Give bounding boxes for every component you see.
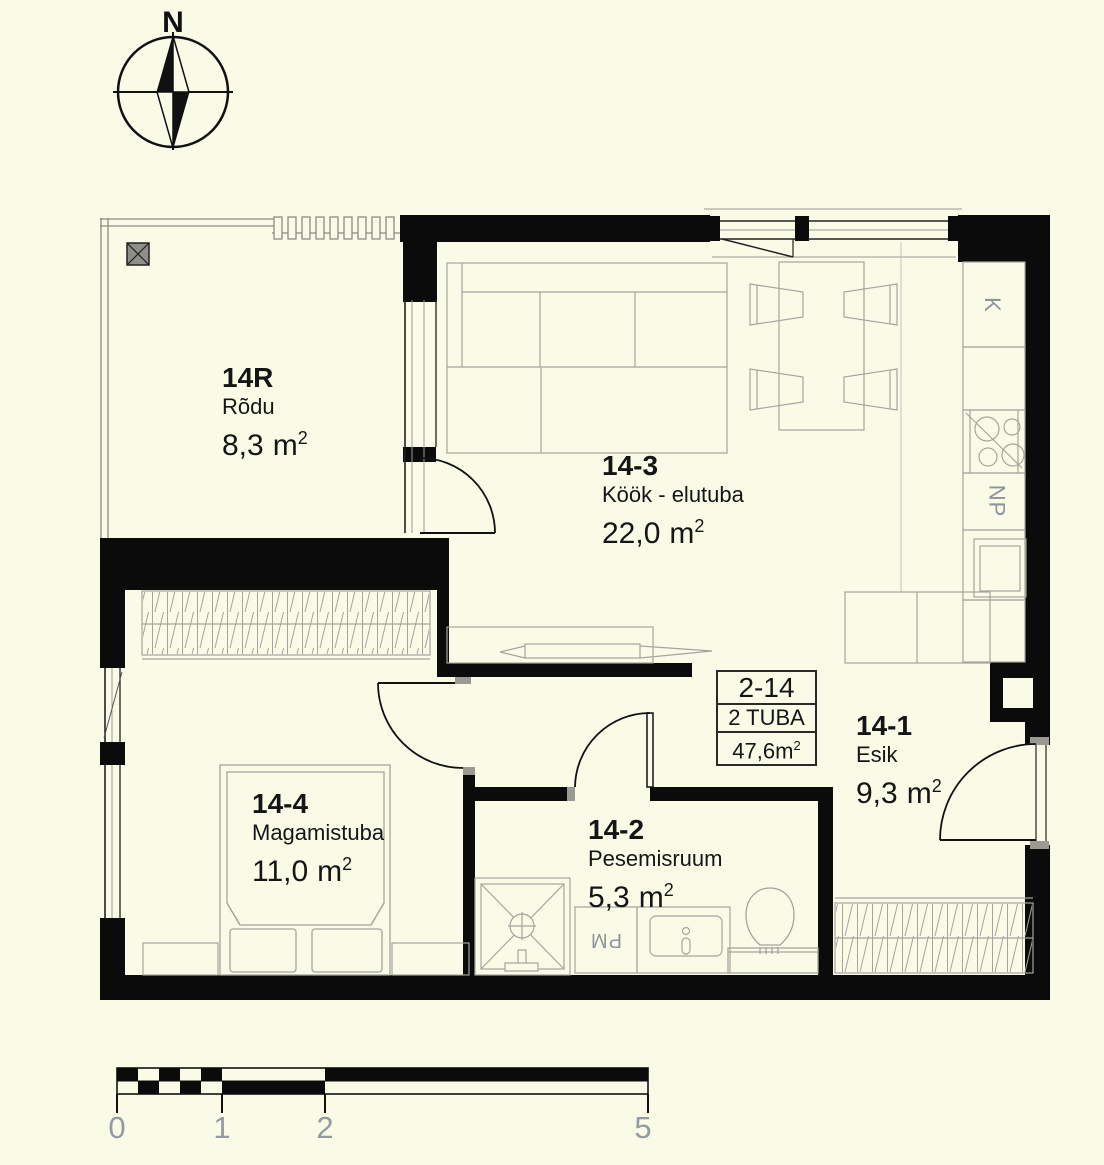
room-code: 14-1 — [856, 710, 942, 741]
hall-wardrobe — [835, 898, 1033, 973]
chair — [750, 284, 803, 325]
dining-table — [779, 262, 864, 430]
entrance-door — [940, 737, 1049, 849]
scale-label-2: 2 — [307, 1110, 343, 1146]
compass-icon — [113, 32, 233, 150]
corner-sofa — [447, 263, 727, 453]
tv-icon — [500, 644, 712, 658]
apartment-total-area: 47,6m2 — [718, 733, 815, 764]
bedroom-door — [378, 677, 475, 775]
kitchen-island-counter — [845, 592, 990, 663]
room-area: 5,3m2 — [588, 872, 722, 916]
room-code: 14-3 — [602, 450, 744, 481]
window-casement-line — [104, 672, 122, 738]
room-name: Köök - elutuba — [602, 481, 744, 508]
scale-label-5: 5 — [625, 1110, 661, 1146]
stove — [963, 410, 1025, 473]
window-left-small — [104, 668, 122, 742]
scale-label-1: 1 — [204, 1110, 240, 1146]
window-top — [704, 209, 962, 257]
scale-label-0: 0 — [99, 1110, 135, 1146]
apartment-number: 2-14 — [718, 672, 815, 705]
room-code: 14-2 — [588, 814, 722, 845]
room-area: 9,3m2 — [856, 768, 942, 812]
room-label-14-4: 14-4 Magamistuba 11,0m2 — [252, 788, 384, 890]
chair — [844, 369, 897, 410]
room-name: Pesemisruum — [588, 845, 722, 872]
room-name: Rõdu — [222, 393, 308, 420]
scale-bar — [117, 1068, 648, 1113]
floor-plan-page: N 14R Rõdu 8,3m2 14-3 Köök - elutuba 22,… — [0, 0, 1104, 1165]
pillow — [230, 929, 296, 972]
nightstand — [392, 943, 469, 975]
shaft-opening — [1003, 678, 1033, 708]
room-area: 11,0m2 — [252, 846, 384, 890]
washing-machine-label: PM — [590, 928, 622, 951]
apartment-rooms-count: 2 TUBA — [718, 705, 815, 733]
nightstand — [143, 943, 218, 975]
pillow — [312, 929, 382, 972]
room-label-14r: 14R Rõdu 8,3m2 — [222, 362, 308, 464]
balcony-door — [420, 458, 495, 533]
compass-north-label: N — [156, 6, 190, 40]
tv-console — [447, 627, 712, 663]
bedroom-wardrobe — [142, 591, 430, 659]
bathroom-door — [567, 713, 653, 801]
toilet — [728, 888, 818, 973]
room-label-14-1: 14-1 Esik 9,3m2 — [856, 710, 942, 812]
room-area: 22,0m2 — [602, 508, 744, 552]
floor-drain-icon — [127, 243, 149, 265]
room-code: 14R — [222, 362, 308, 393]
np-cabinet-label: NP — [983, 485, 1009, 518]
apartment-info-box: 2-14 2 TUBA 47,6m2 — [716, 670, 817, 766]
balcony-glazed-wall — [405, 300, 436, 533]
faucet-icon — [682, 938, 690, 954]
kitchen-sink — [963, 530, 1026, 600]
room-area: 8,3m2 — [222, 420, 308, 464]
window-left-tall — [105, 765, 120, 918]
room-name: Esik — [856, 741, 942, 768]
room-name: Magamistuba — [252, 819, 384, 846]
room-label-14-3: 14-3 Köök - elutuba 22,0m2 — [602, 450, 744, 552]
room-code: 14-4 — [252, 788, 384, 819]
dining-set — [750, 262, 897, 430]
bathroom-sink — [637, 907, 730, 973]
fridge-label: K — [979, 297, 1005, 313]
chair — [844, 284, 897, 325]
shower — [475, 878, 570, 975]
chair — [750, 369, 803, 410]
room-label-14-2: 14-2 Pesemisruum 5,3m2 — [588, 814, 722, 916]
floor-plan-drawing — [0, 0, 1104, 1165]
